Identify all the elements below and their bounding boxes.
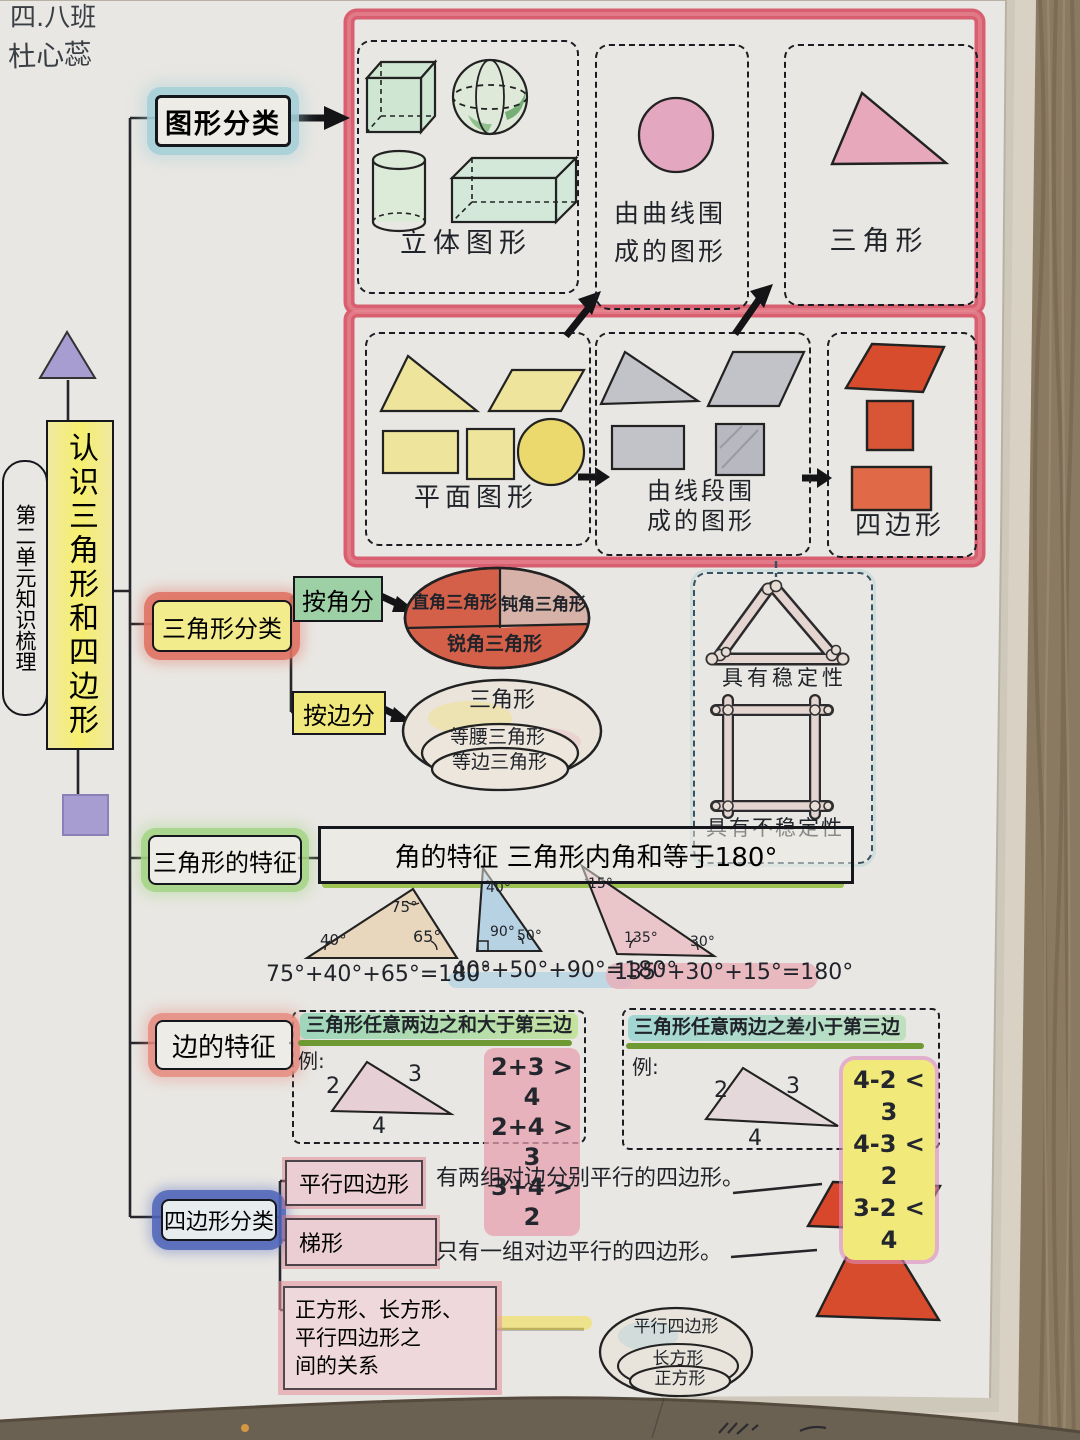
triangle-category-box — [784, 44, 978, 306]
obtuse-triangle-label: 钝角三角形 — [501, 596, 586, 616]
rule1-side-4: 4 — [372, 1114, 386, 1139]
rule1-side-2: 2 — [326, 1074, 340, 1099]
node-side-features: 边的特征 — [155, 1020, 293, 1070]
tri2-right-angle: 50° — [517, 928, 542, 944]
node-quad-classification: 四边形分类 — [161, 1199, 277, 1241]
venn-square-label: 正方形 — [630, 1370, 730, 1390]
tri3-top-angle: 15° — [588, 876, 613, 892]
rule2-ineq-3: 3-2 < 4 — [843, 1192, 935, 1256]
rule2-example-label: 例: — [632, 1056, 659, 1079]
rule2-inequalities: 4-2 < 3 4-3 < 2 3-2 < 4 — [843, 1060, 935, 1260]
side-inner-label: 等边三角形 — [452, 752, 547, 774]
plane-figures-label: 平面图形 — [365, 484, 587, 514]
tri2-left-angle: 90° — [490, 924, 515, 940]
rule2-side-4: 4 — [748, 1126, 762, 1151]
side-middle-label: 等腰三角形 — [450, 727, 545, 749]
rule1-title: 三角形任意两边之和大于第三边 — [300, 1013, 578, 1039]
venn-rectangle-label: 长方形 — [628, 1350, 728, 1370]
curve-figures-box — [595, 44, 749, 310]
tri1-right-angle: 65° — [413, 928, 441, 946]
rule1-example-label: 例: — [298, 1050, 325, 1073]
tri3-equation: 135°+30°+15°=180° — [614, 960, 853, 985]
curve-figures-label-1: 由曲线围 — [595, 200, 745, 229]
stable-label: 具有稳定性 — [722, 666, 847, 690]
segment-figures-label-2: 成的图形 — [595, 508, 807, 536]
node-shape-classification: 图形分类 — [155, 95, 291, 147]
solid-figures-label: 立体图形 — [357, 228, 575, 259]
tri2-top-angle: 40° — [486, 880, 511, 896]
tri3-right-angle: 30° — [690, 934, 715, 950]
venn-parallelogram-label: 平行四边形 — [626, 1318, 726, 1338]
segment-figures-label-1: 由线段围 — [595, 478, 807, 506]
rule2-side-3: 3 — [786, 1074, 800, 1099]
mindmap-photo: 四.八班 杜心蕊 认识三角形和四边形 第二单元知识梳理 图形分类 立体图形 由曲… — [0, 0, 1080, 1440]
tri1-top-angle: 75° — [391, 899, 418, 916]
node-triangle-features: 三角形的特征 — [148, 835, 302, 885]
plane-figures-box — [365, 332, 591, 546]
angle-rule-box: 角的特征 三角形内角和等于180° — [318, 826, 854, 884]
unit-bubble: 第二单元知识梳理 — [2, 460, 48, 716]
rule2-side-2: 2 — [714, 1078, 728, 1103]
rule1-side-3: 3 — [408, 1062, 422, 1087]
class-name: 四.八班 — [10, 4, 96, 34]
relations-line-3: 间的关系 — [295, 1352, 379, 1380]
rule1-underline — [298, 1040, 572, 1046]
student-name: 杜心蕊 — [7, 39, 92, 74]
node-triangle-classification: 三角形分类 — [152, 600, 292, 652]
side-outer-label: 三角形 — [462, 688, 542, 713]
quad-category-label: 四边形 — [827, 512, 973, 542]
by-angle-box: 按角分 — [293, 576, 383, 622]
root-title: 认识三角形和四边形 — [46, 420, 114, 750]
parallelogram-desc: 有两组对边分别平行的四边形。 — [436, 1166, 744, 1191]
triangle-category-label: 三角形 — [784, 226, 974, 257]
rule2-ineq-2: 4-3 < 2 — [843, 1128, 935, 1192]
rule2-ineq-1: 4-2 < 3 — [843, 1064, 935, 1128]
relations-line-1: 正方形、长方形、 — [295, 1296, 463, 1324]
right-triangle-label: 直角三角形 — [412, 594, 497, 614]
rule2-title: 三角形任意两边之差小于第三边 — [628, 1015, 906, 1041]
relations-line-2: 平行四边形之 — [295, 1324, 421, 1352]
curve-figures-label-2: 成的图形 — [595, 238, 745, 267]
parallelogram-node: 平行四边形 — [285, 1160, 423, 1206]
trapezoid-node: 梯形 — [285, 1218, 437, 1266]
rule2-underline — [626, 1043, 924, 1049]
rule1-inequalities: 2+3 > 4 2+4 > 3 3+4 > 2 — [484, 1048, 580, 1236]
rule1-ineq-1: 2+3 > 4 — [484, 1052, 580, 1112]
relations-node: 正方形、长方形、 平行四边形之 间的关系 — [283, 1286, 497, 1390]
purple-square-icon — [63, 795, 108, 835]
tri1-left-angle: 40° — [320, 932, 347, 949]
rule1-ineq-2: 2+4 > 3 — [484, 1112, 580, 1172]
acute-triangle-label: 锐角三角形 — [447, 634, 542, 656]
tri3-left-angle: 135° — [624, 930, 658, 946]
by-side-box: 按边分 — [292, 691, 386, 735]
trapezoid-desc: 只有一组对边平行的四边形。 — [436, 1240, 722, 1265]
